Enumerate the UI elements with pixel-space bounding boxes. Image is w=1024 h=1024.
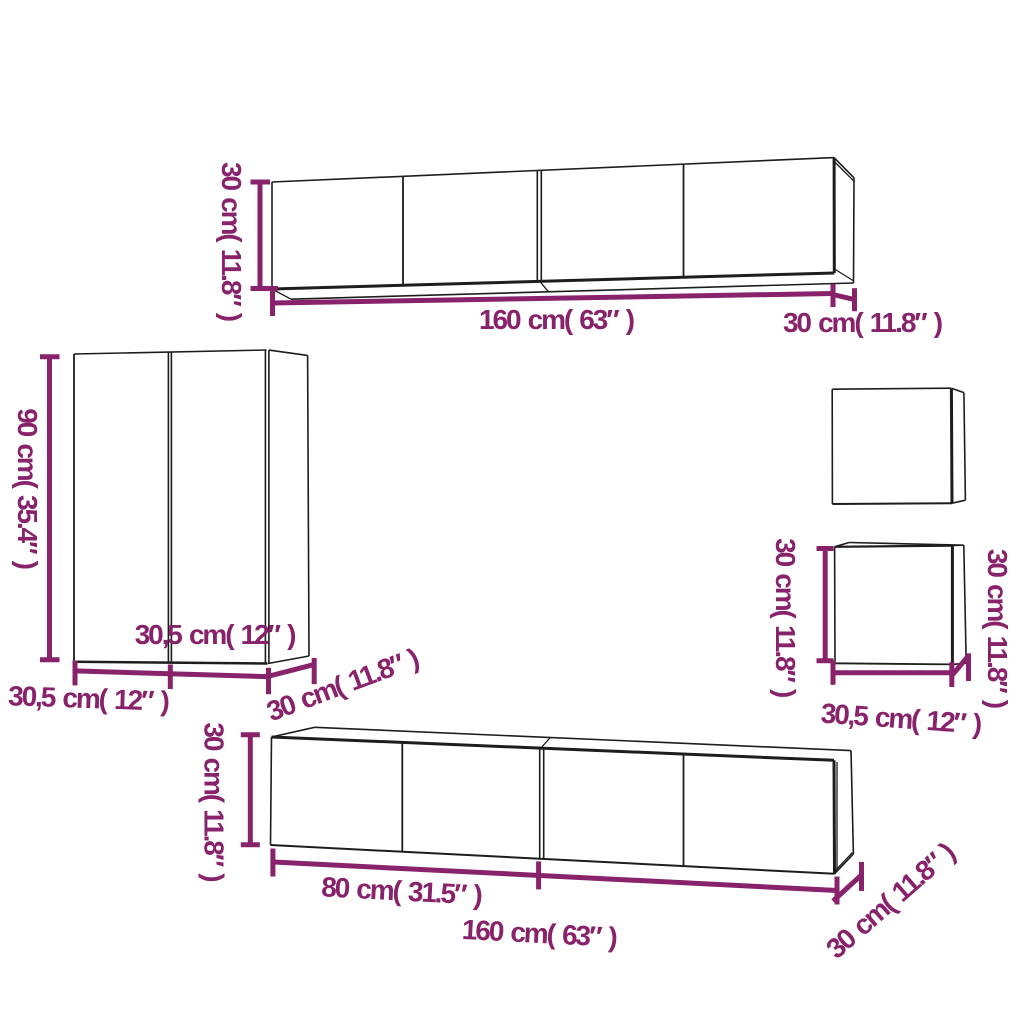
svg-text:160 cm( 63″ ): 160 cm( 63″ ): [479, 304, 634, 335]
svg-text:30 cm( 11.8″ ): 30 cm( 11.8″ ): [783, 307, 942, 338]
svg-text:30 cm( 11.8″ ): 30 cm( 11.8″ ): [216, 162, 247, 321]
svg-text:30,5 cm( 12″ ): 30,5 cm( 12″ ): [8, 680, 169, 717]
svg-text:30 cm( 11.8″ ): 30 cm( 11.8″ ): [199, 722, 230, 881]
svg-text:30,5 cm( 12″ ): 30,5 cm( 12″ ): [135, 619, 295, 650]
svg-text:30 cm( 11.8″ ): 30 cm( 11.8″ ): [770, 538, 801, 697]
svg-text:90 cm( 35.4″ ): 90 cm( 35.4″ ): [12, 408, 43, 568]
svg-text:30 cm( 11.8″ ): 30 cm( 11.8″ ): [982, 549, 1013, 708]
